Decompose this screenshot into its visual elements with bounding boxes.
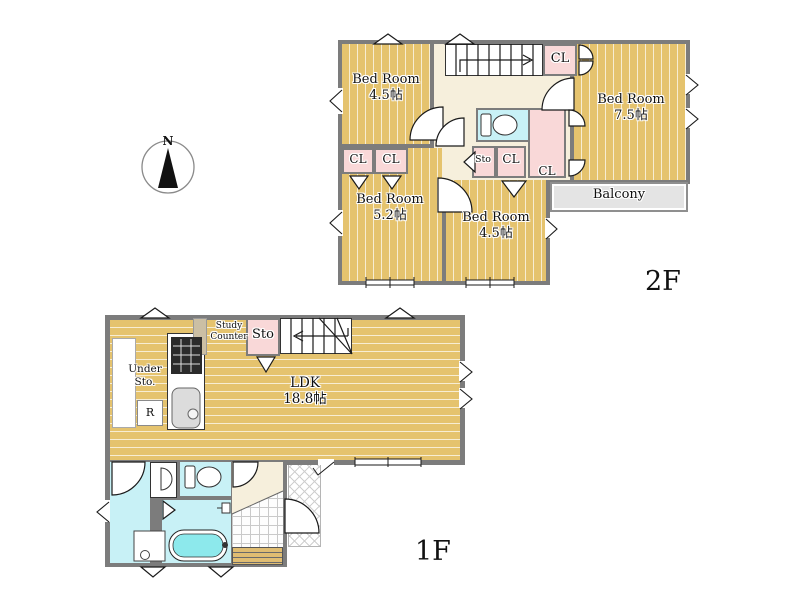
- floor1-plan: LDK18.8帖 UnderSto. R StudyCounter Sto: [105, 315, 465, 575]
- window-peak-icon: [209, 567, 233, 577]
- closet-top-label: CL: [543, 51, 577, 67]
- washroom-floor: [110, 462, 150, 563]
- entrance-approach-tile: [288, 457, 321, 547]
- bedroom-a-name: Bed Room: [352, 72, 419, 87]
- study-counter-line2: Counter: [210, 332, 247, 342]
- study-counter-line1: Study: [216, 321, 242, 331]
- closet-a-label: CL: [342, 152, 374, 166]
- bedroom-c-label: Bed Room5.2帖: [342, 192, 438, 223]
- bedroom-d-name: Bed Room: [462, 210, 529, 225]
- ldk-name: LDK: [290, 375, 320, 391]
- compass-north-label: N: [163, 134, 174, 148]
- bedroom-c-size: 5.2帖: [373, 208, 407, 223]
- window-peak-icon: [141, 567, 165, 577]
- floorplan-page: { "colors": { "wood": "#e5c36e", "wood_l…: [0, 0, 800, 600]
- floor2-tag: 2F: [645, 266, 681, 297]
- bedroom-b-size: 7.5帖: [614, 108, 648, 123]
- toilet-room-1f: [180, 462, 231, 496]
- under-storage-label: UnderSto.: [115, 363, 175, 388]
- staircase-2f: [445, 44, 543, 76]
- toilet-room-2f: [476, 108, 530, 142]
- washbasin-unit: [150, 462, 177, 498]
- compass-icon: N: [136, 128, 200, 194]
- closet-mid-label: CL: [496, 152, 526, 166]
- compass: N: [136, 128, 200, 194]
- ldk-size: 18.8帖: [283, 391, 327, 407]
- bedroom-c-name: Bed Room: [356, 192, 423, 207]
- storage-1f-label: Sto: [246, 327, 280, 343]
- under-storage-line1: Under: [128, 363, 162, 375]
- bedroom-b-name: Bed Room: [597, 92, 664, 107]
- ldk-label: LDK18.8帖: [253, 375, 357, 407]
- storage-2f-label: Sto: [469, 154, 497, 165]
- staircase-1f: [280, 318, 352, 354]
- closet-b-label: CL: [374, 152, 408, 166]
- closet-right-label: CL: [528, 164, 566, 178]
- bedroom-d-label: Bed Room4.5帖: [446, 210, 546, 241]
- floor2-plan: Bed Room4.5帖 Bed Room7.5帖 Bed Room5.2帖 B…: [338, 40, 690, 285]
- bathroom-floor: [162, 500, 231, 563]
- floor1-tag: 1F: [415, 536, 451, 567]
- refrigerator-label: R: [137, 406, 163, 419]
- bedroom-b-label: Bed Room7.5帖: [576, 92, 686, 123]
- under-storage-line2: Sto.: [135, 376, 156, 388]
- balcony-label: Balcony: [550, 187, 688, 203]
- porch-step: [232, 547, 283, 565]
- bedroom-a-size: 4.5帖: [369, 88, 403, 103]
- bedroom-d-size: 4.5帖: [479, 226, 513, 241]
- bedroom-a-label: Bed Room4.5帖: [342, 72, 430, 103]
